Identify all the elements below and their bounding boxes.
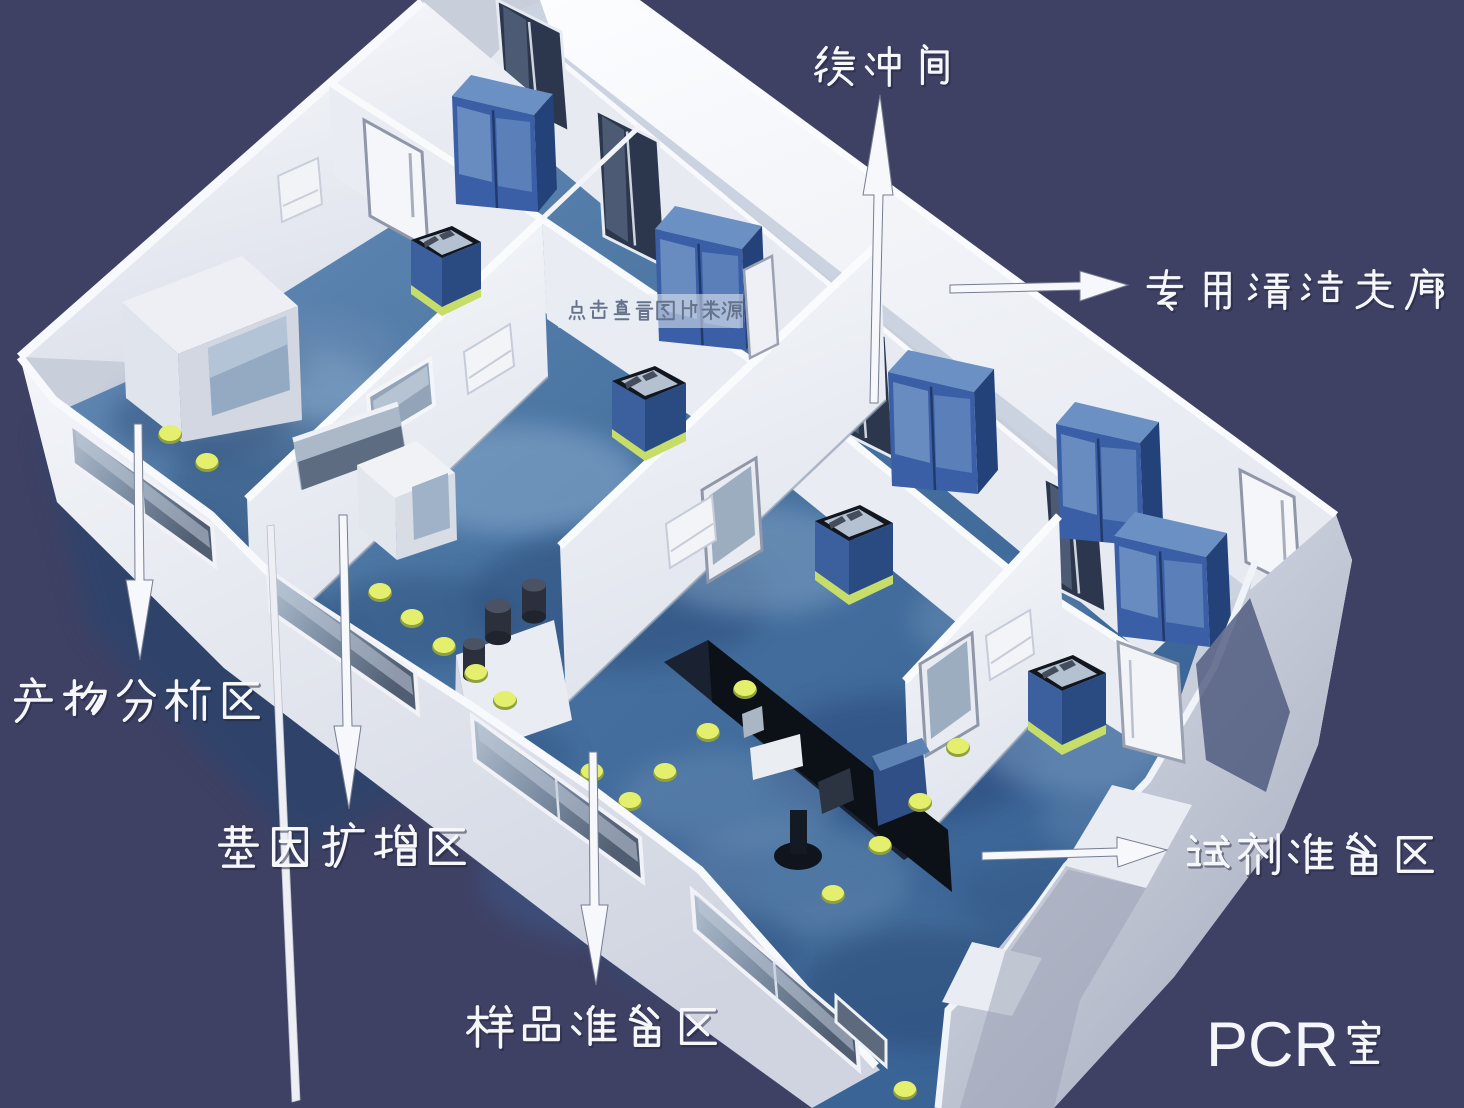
svg-text:PCR: PCR	[1206, 1010, 1339, 1080]
